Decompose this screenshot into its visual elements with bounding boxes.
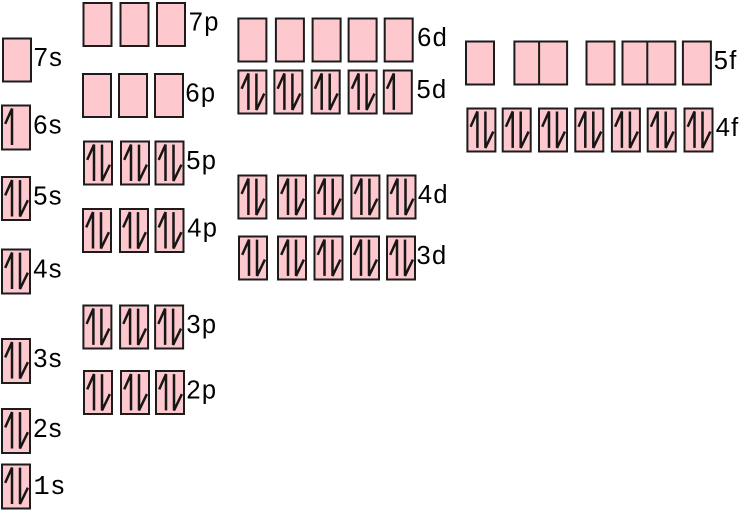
svg-text:5p: 5p bbox=[186, 147, 217, 175]
svg-text:7s: 7s bbox=[34, 44, 64, 72]
svg-text:2p: 2p bbox=[186, 376, 217, 404]
svg-text:3p: 3p bbox=[186, 311, 217, 339]
svg-text:4d: 4d bbox=[418, 181, 449, 209]
svg-text:6d: 6d bbox=[417, 24, 448, 52]
svg-text:4p: 4p bbox=[187, 214, 218, 242]
svg-text:4f: 4f bbox=[716, 114, 740, 142]
svg-text:5f: 5f bbox=[714, 47, 738, 75]
svg-text:1s: 1s bbox=[34, 472, 66, 503]
svg-text:6s: 6s bbox=[33, 111, 63, 139]
svg-text:5d: 5d bbox=[417, 76, 448, 104]
svg-text:6p: 6p bbox=[185, 79, 216, 107]
svg-text:5s: 5s bbox=[33, 182, 63, 210]
svg-text:2s: 2s bbox=[33, 415, 63, 443]
svg-text:7p: 7p bbox=[189, 8, 220, 36]
svg-text:4s: 4s bbox=[33, 255, 63, 283]
svg-text:3s: 3s bbox=[33, 345, 63, 373]
svg-text:3d: 3d bbox=[417, 242, 448, 270]
